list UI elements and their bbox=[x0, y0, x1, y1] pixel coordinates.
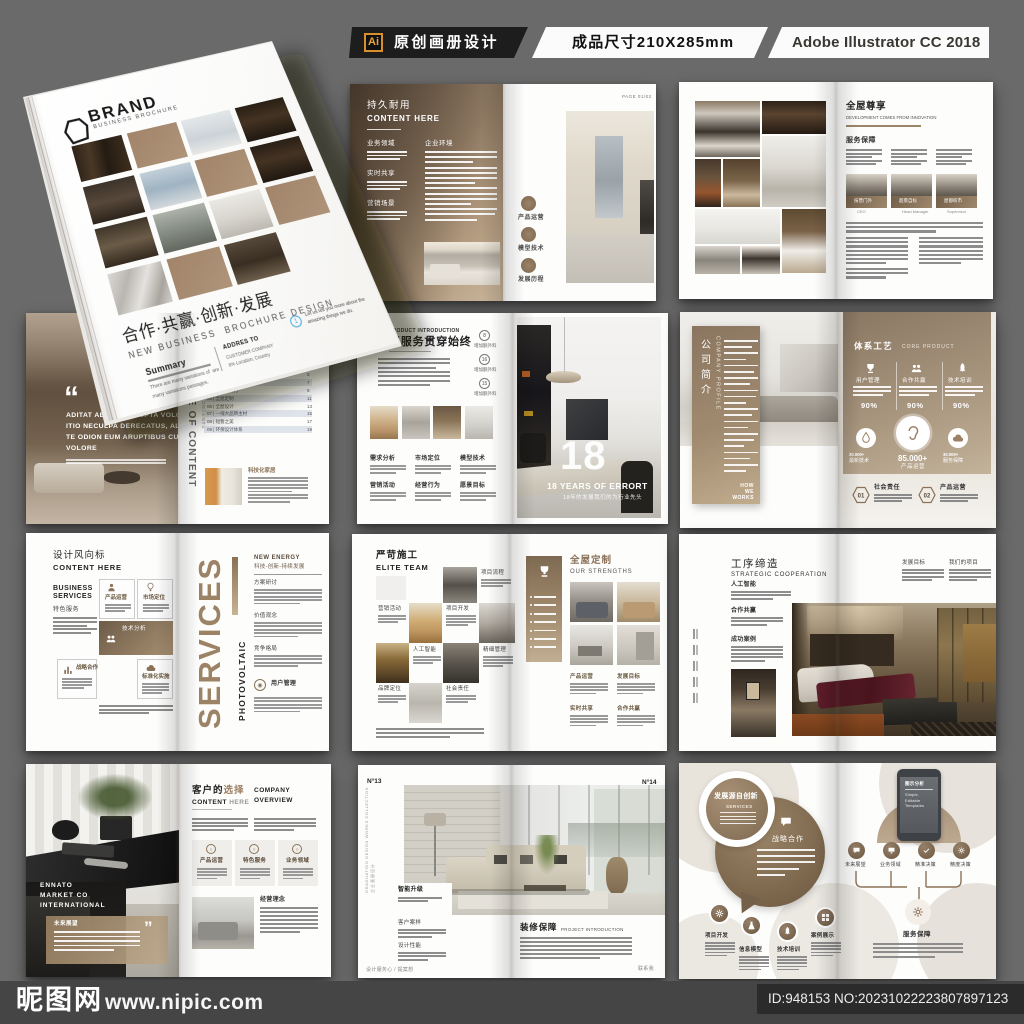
svg-text:01: 01 bbox=[858, 494, 865, 500]
svg-text:02: 02 bbox=[924, 494, 931, 500]
